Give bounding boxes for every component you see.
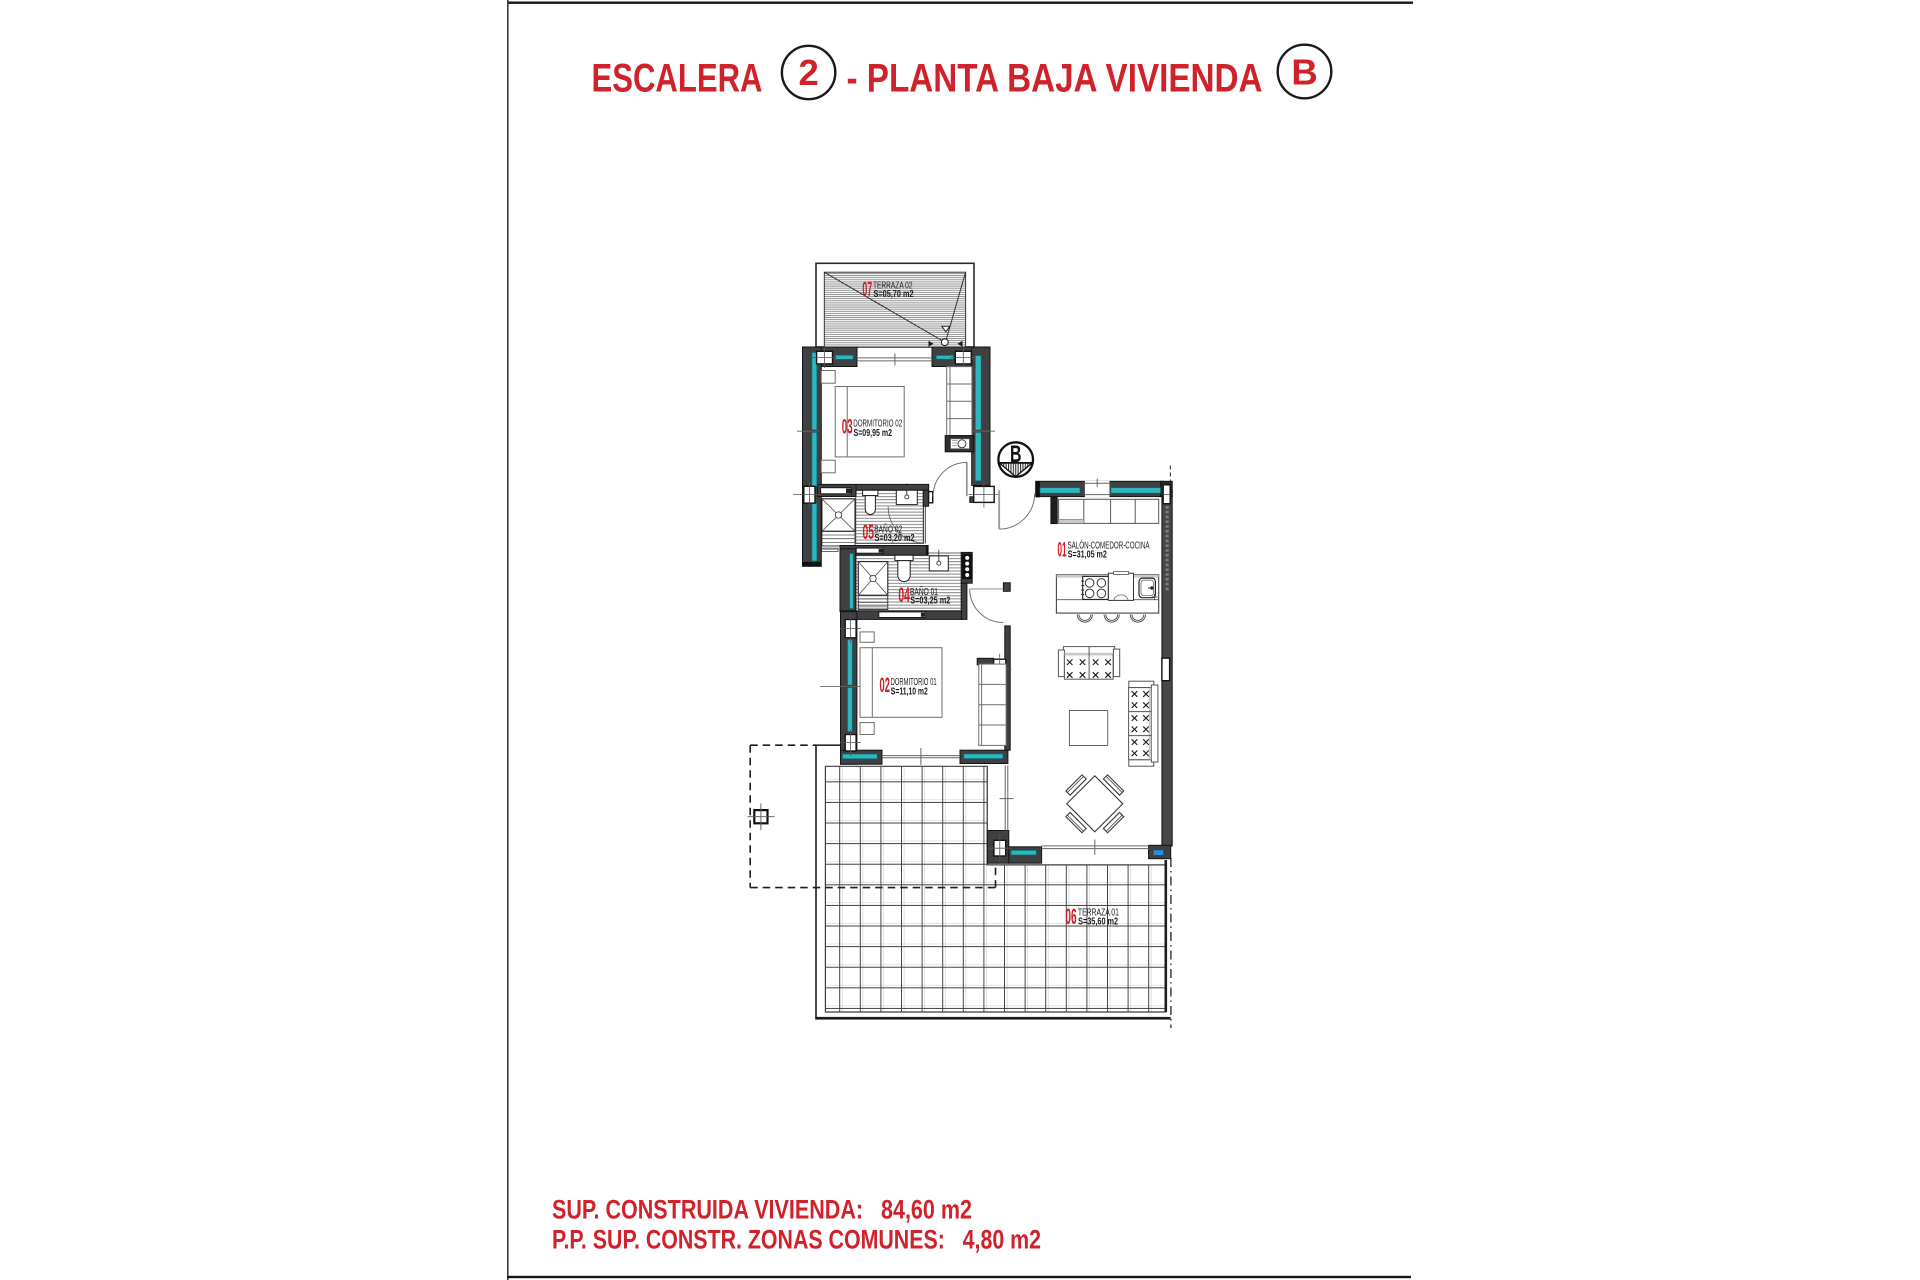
svg-text:S=03,25 m2: S=03,25 m2 <box>910 596 950 607</box>
svg-text:S=05,70 m2: S=05,70 m2 <box>874 289 914 300</box>
svg-text:04: 04 <box>898 584 910 607</box>
svg-text:S=11,10 m2: S=11,10 m2 <box>891 687 928 698</box>
svg-text:05: 05 <box>863 521 875 544</box>
svg-text:S=35,60 m2: S=35,60 m2 <box>1078 917 1118 928</box>
svg-text:S=09,95 m2: S=09,95 m2 <box>854 428 893 439</box>
svg-text:ESCALERA: ESCALERA <box>592 57 763 101</box>
svg-text:07: 07 <box>862 278 872 301</box>
svg-text:B: B <box>1291 52 1317 93</box>
svg-text:- PLANTA BAJA VIVIENDA: - PLANTA BAJA VIVIENDA <box>847 57 1263 101</box>
svg-text:P.P. SUP. CONSTR. ZONAS COMUNE: P.P. SUP. CONSTR. ZONAS COMUNES: 4,80 m2 <box>552 1224 1041 1254</box>
svg-text:S=03,20 m2: S=03,20 m2 <box>875 533 915 544</box>
svg-text:SUP. CONSTRUIDA VIVIENDA: 84: SUP. CONSTRUIDA VIVIENDA: 84,60 m2 <box>552 1195 972 1225</box>
svg-text:03: 03 <box>842 415 853 438</box>
svg-text:2: 2 <box>798 52 818 93</box>
svg-text:S=31,05 m2: S=31,05 m2 <box>1068 549 1107 560</box>
svg-text:06: 06 <box>1065 904 1076 929</box>
svg-text:B: B <box>1010 441 1022 468</box>
svg-text:02: 02 <box>880 674 890 697</box>
svg-text:01: 01 <box>1058 539 1067 562</box>
